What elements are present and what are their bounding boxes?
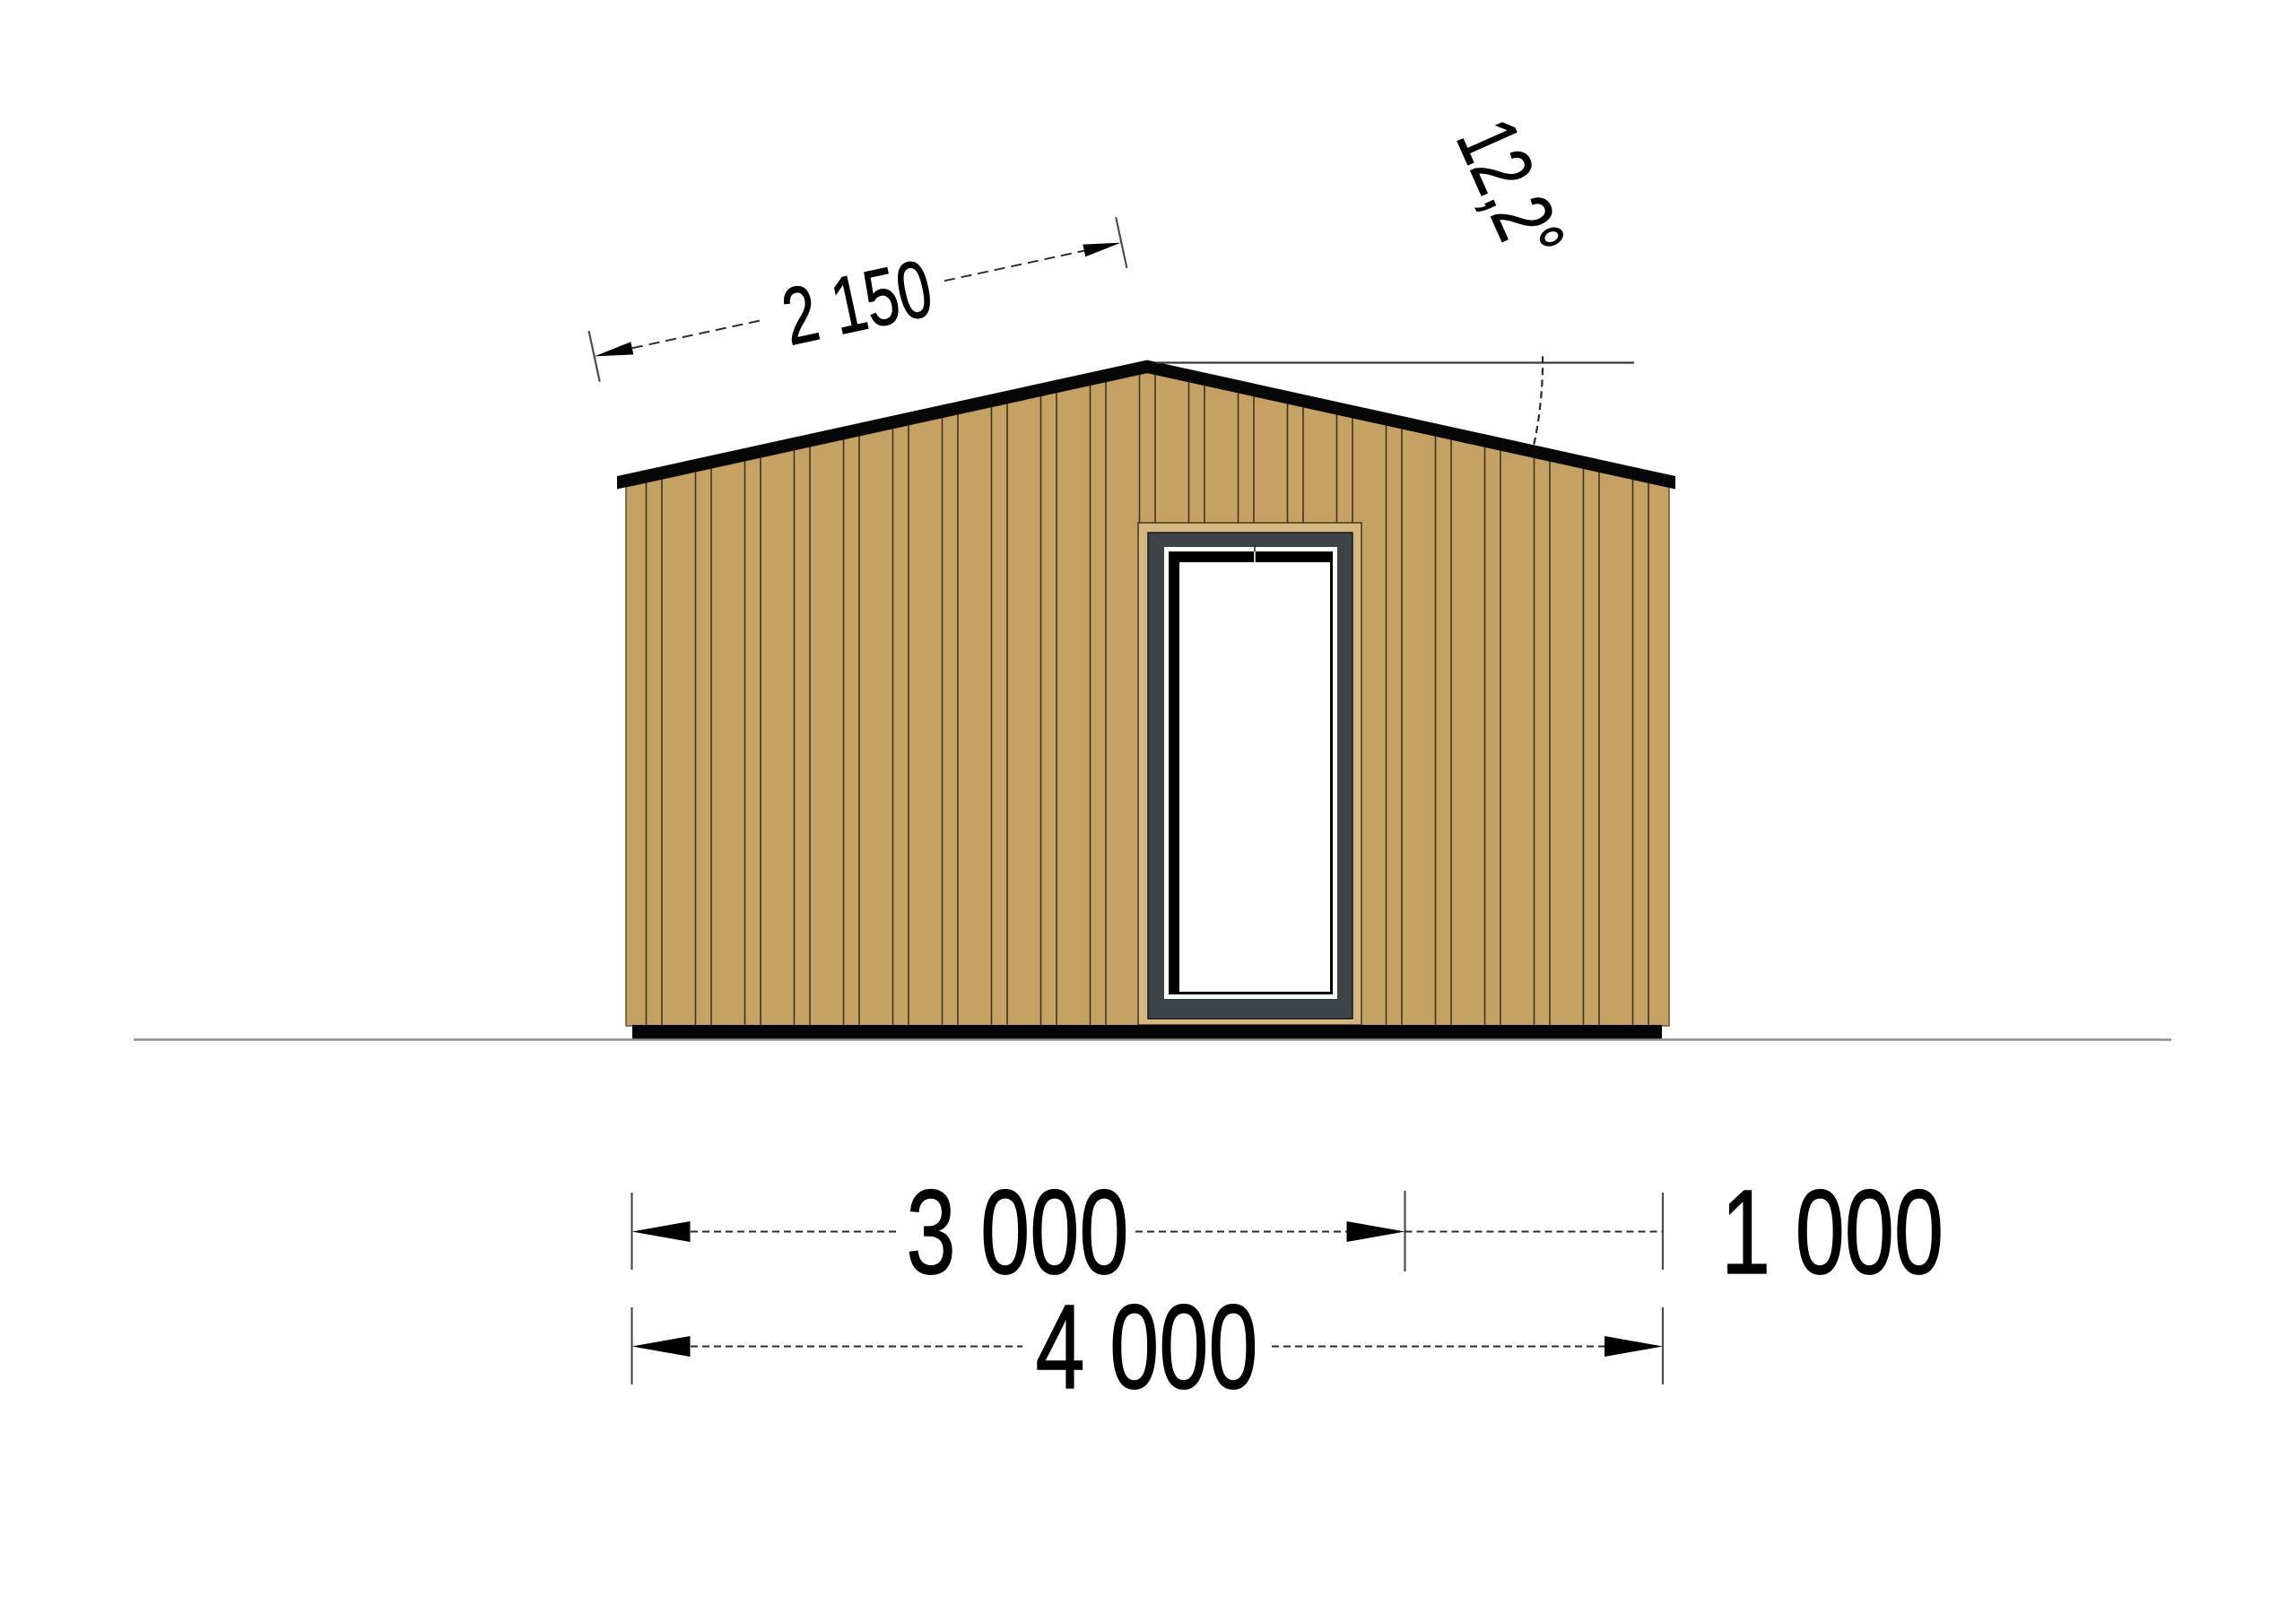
svg-text:4 000: 4 000 [1035, 1279, 1257, 1413]
svg-text:1 000: 1 000 [1721, 1164, 1944, 1298]
